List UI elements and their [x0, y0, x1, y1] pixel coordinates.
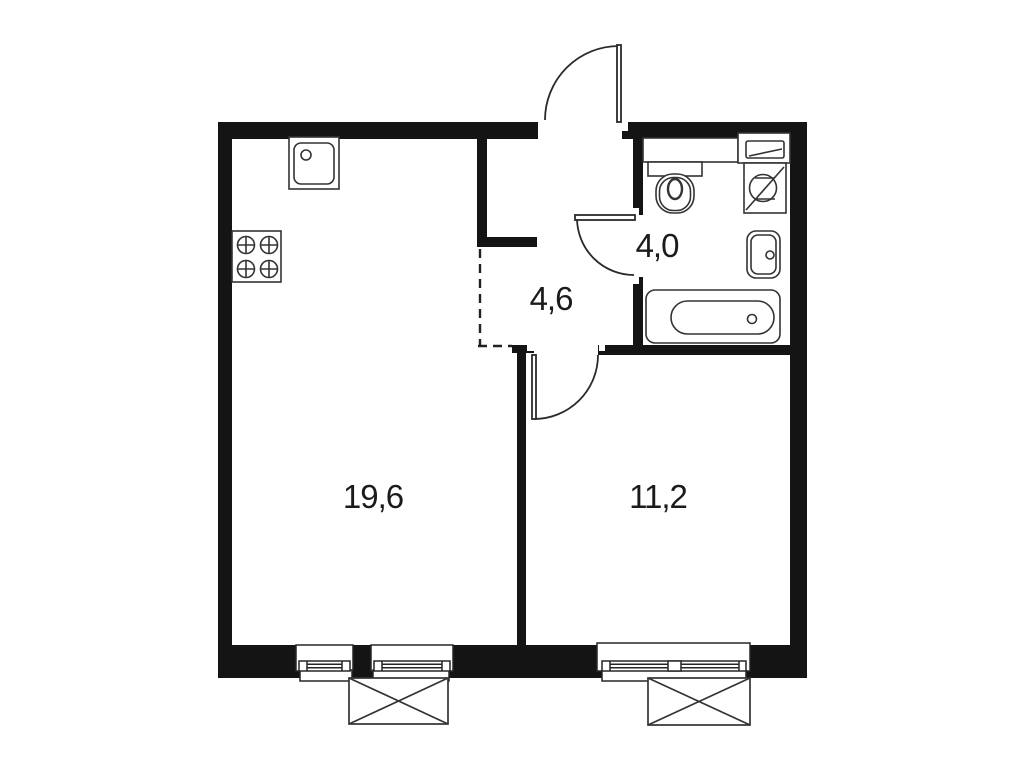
- bathroom-door-swing-arc: [577, 218, 634, 275]
- window-kitchen-left: [296, 645, 353, 681]
- ac-basket-left: [349, 678, 448, 724]
- room-label-bathroom: 4,0: [636, 227, 679, 265]
- bathroom-door: [575, 215, 635, 275]
- bedroom-door-swing-arc: [534, 355, 598, 419]
- walls: [218, 122, 807, 678]
- wall-hall-kitchen-vertical: [477, 139, 487, 247]
- entry-door: [545, 45, 621, 122]
- bedroom-door: [532, 355, 598, 419]
- ac-baskets: [349, 678, 750, 725]
- wall-right: [790, 122, 807, 678]
- stove-icon: [232, 231, 281, 282]
- entry-door-leaf: [617, 45, 621, 122]
- wall-hall-kitchen-stub: [477, 237, 537, 247]
- hallway-dashed-boundary: [478, 249, 512, 346]
- entry-door-swing-arc: [545, 46, 619, 120]
- ac-basket-right: [648, 678, 750, 725]
- wall-bedroom-bathroom-bottom: [598, 345, 790, 355]
- kitchen-fixtures: [232, 137, 339, 282]
- room-label-living-kitchen: 19,6: [343, 478, 403, 516]
- floor-plan-canvas: 19,6 11,2 4,6 4,0: [0, 0, 1024, 768]
- wall-top-left: [218, 122, 538, 139]
- toilet-icon: [648, 162, 702, 213]
- doors: [532, 45, 635, 419]
- wall-bathroom-left-lower: [633, 277, 643, 355]
- washing-machine-icon: [744, 163, 786, 213]
- shelf-icon: [738, 133, 790, 163]
- bathroom-counter: [643, 138, 738, 162]
- floor-plan-drawing: [0, 0, 1024, 768]
- room-label-hallway: 4,6: [530, 280, 573, 318]
- wall-kitchen-bedroom-vertical: [517, 353, 526, 645]
- window-bedroom: [597, 643, 750, 681]
- bathroom-door-leaf: [575, 215, 635, 220]
- washbasin-icon: [747, 231, 780, 278]
- room-label-bedroom: 11,2: [629, 478, 687, 516]
- bathtub-icon: [646, 290, 780, 343]
- bedroom-door-leaf: [532, 355, 536, 419]
- wall-left: [218, 122, 232, 678]
- kitchen-sink-icon: [289, 137, 339, 189]
- window-kitchen-right: [371, 645, 453, 681]
- wall-bathroom-left-upper: [633, 139, 643, 215]
